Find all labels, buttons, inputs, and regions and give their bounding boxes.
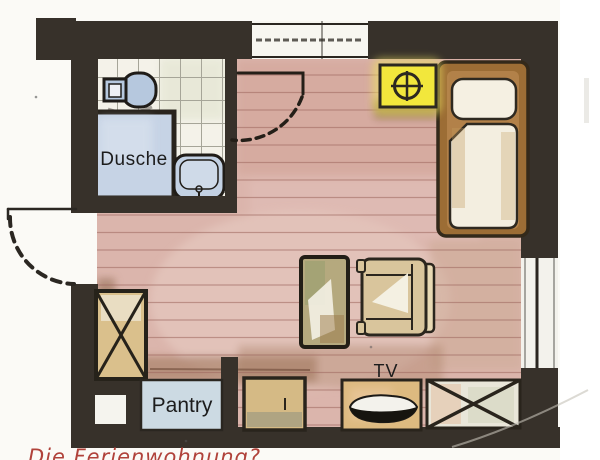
top-window-icon (252, 21, 368, 59)
armchair-icon (357, 259, 434, 335)
ink-speck (185, 440, 188, 443)
electrical-marker (372, 58, 442, 116)
floorplan-drawing (0, 0, 600, 460)
scanner-streak (584, 78, 589, 123)
shower-icon (94, 112, 174, 198)
caption-title: Die Ferienwohnung? (28, 445, 428, 460)
wall-niche (95, 395, 126, 424)
floorplan-canvas: Dusche Pantry TV Die Ferienwohnung? (0, 0, 600, 460)
entry-door-icon (8, 209, 76, 284)
chest-icon (244, 378, 305, 430)
ink-speck (35, 96, 38, 99)
right-window-icon (521, 258, 558, 368)
page-right-margin (560, 0, 600, 460)
sink-icon (174, 155, 224, 199)
bed-icon (438, 62, 528, 236)
tv-cabinet-icon (342, 380, 421, 430)
ink-speck (370, 346, 373, 349)
wardrobe-right-icon (427, 380, 520, 428)
table-icon (301, 257, 348, 347)
pantry-counter (141, 380, 222, 430)
wardrobe-left-icon (96, 291, 146, 379)
